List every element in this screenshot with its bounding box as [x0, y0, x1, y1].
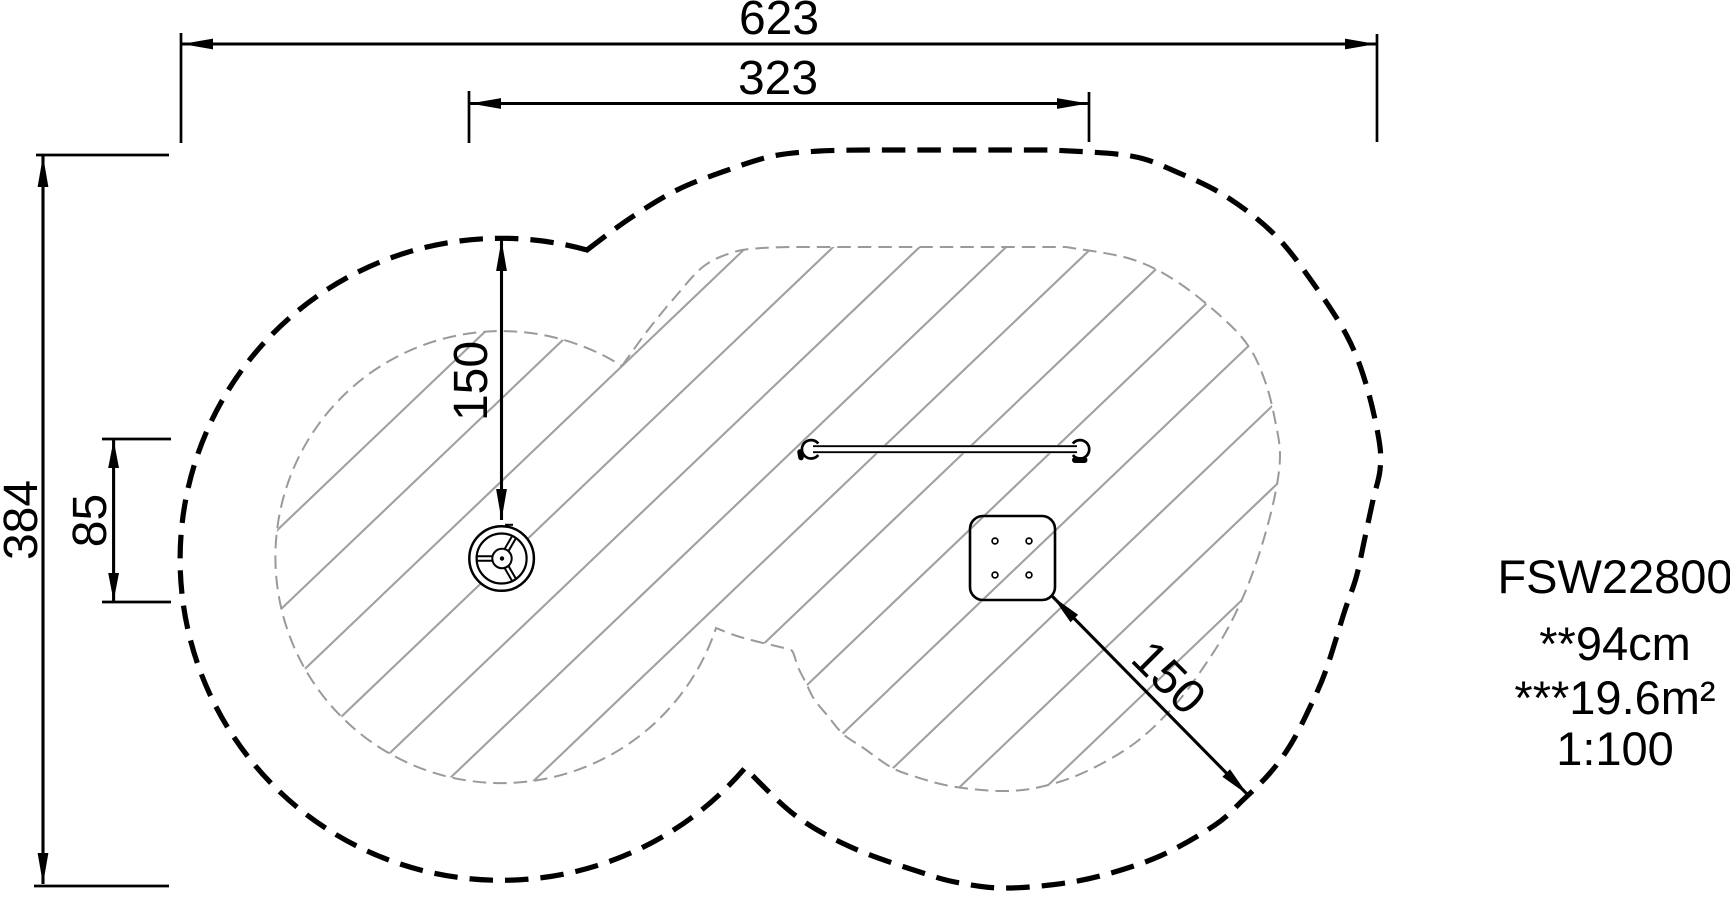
svg-text:FSW22800: FSW22800 — [1497, 550, 1730, 603]
svg-text:***19.6m²: ***19.6m² — [1514, 671, 1715, 724]
svg-text:323: 323 — [738, 52, 818, 105]
svg-text:85: 85 — [64, 494, 117, 547]
svg-text:1:100: 1:100 — [1556, 722, 1674, 775]
svg-text:623: 623 — [739, 0, 819, 45]
svg-text:384: 384 — [0, 480, 48, 560]
svg-text:150: 150 — [445, 341, 498, 421]
svg-text:150: 150 — [1121, 631, 1215, 725]
svg-text:**94cm: **94cm — [1539, 617, 1691, 670]
